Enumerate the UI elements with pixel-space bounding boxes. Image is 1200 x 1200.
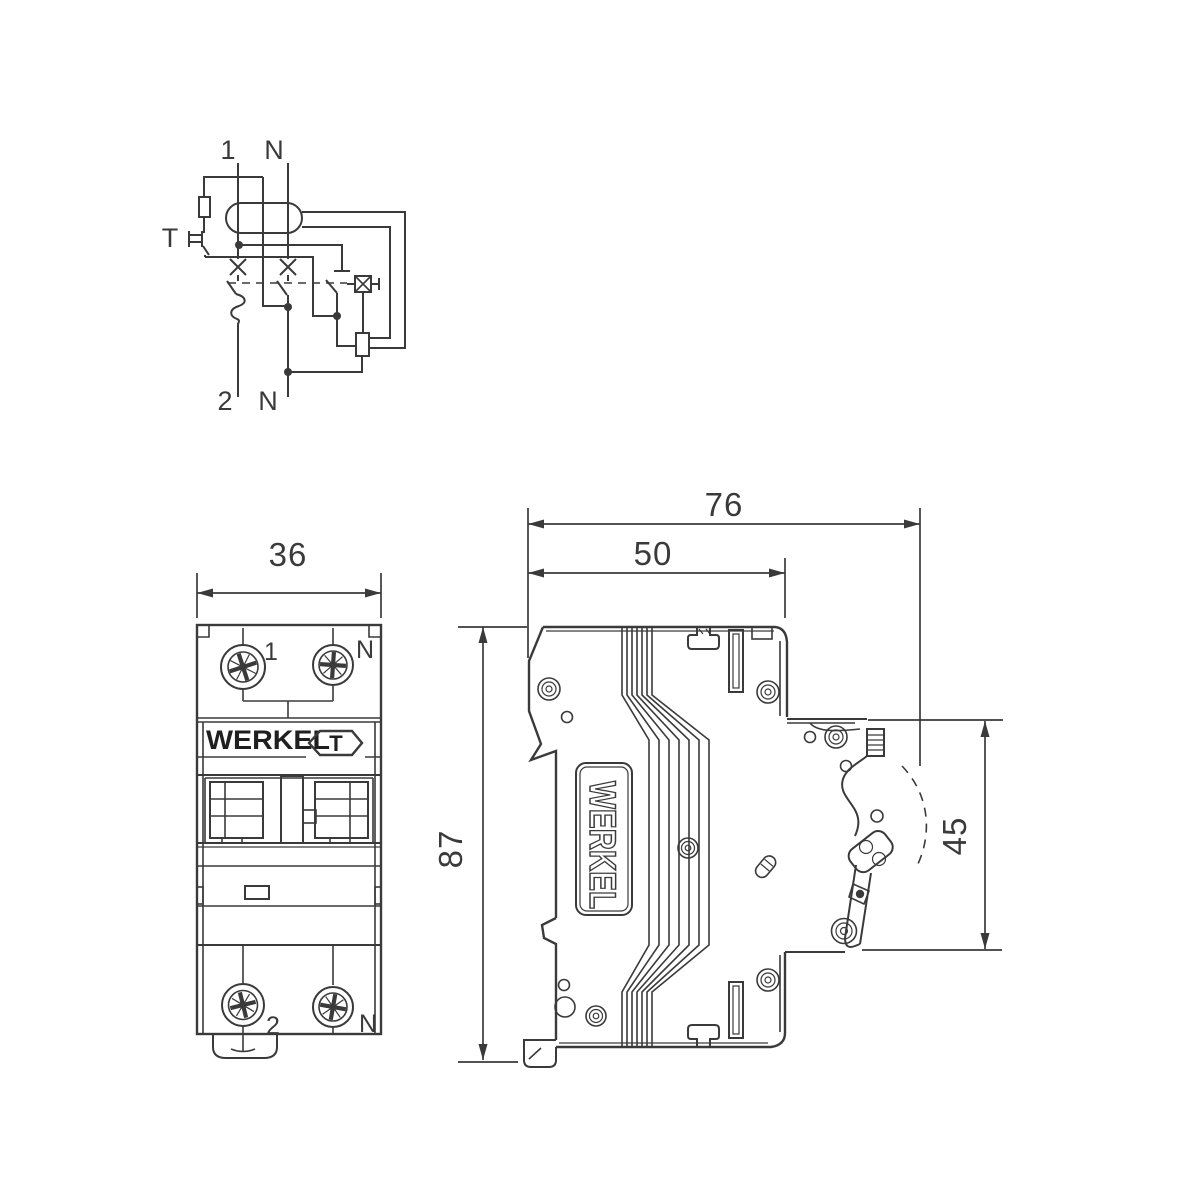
side-view: 76 50 87 45 — [432, 486, 1003, 1067]
side-toggle-lever[interactable] — [832, 766, 927, 947]
case-grooves — [622, 627, 709, 1047]
relay-coil — [356, 333, 369, 356]
indicator-capsule — [753, 853, 778, 880]
thermal-release-symbol — [231, 294, 244, 397]
dim-text-87: 87 — [432, 830, 469, 869]
drawing-page: 1 N T 2 N 36 — [0, 0, 1200, 1200]
terminal-screw-bottom-left — [222, 984, 264, 1052]
side-brand-plate: WERKEL — [576, 763, 632, 915]
wiring-schematic: 1 N T 2 N — [162, 135, 405, 416]
terminal-bracket — [787, 719, 884, 836]
test-button-label: T — [329, 731, 343, 756]
front-view: 36 1 N WERKE — [197, 536, 381, 1058]
technical-drawing: 1 N T 2 N 36 — [0, 0, 1200, 1200]
dim-text-76: 76 — [705, 486, 744, 523]
front-terminal-label-n-top: N — [356, 636, 374, 664]
din-clip-side — [524, 1040, 556, 1067]
indicator-window — [245, 886, 269, 899]
dimension-width-36: 36 — [197, 536, 381, 618]
dimension-height-87: 87 — [432, 627, 527, 1062]
terminal-screw-bottom-right — [313, 987, 353, 1034]
schematic-label-neutral-out: N — [258, 386, 278, 416]
top-mount-slot — [688, 627, 719, 649]
terminal-screw-top-left — [221, 628, 265, 701]
side-brand-label: WERKEL — [582, 781, 623, 909]
schematic-label-line-out: 2 — [217, 386, 232, 416]
dim-text-50: 50 — [634, 535, 673, 572]
contact-symbol-pole1 — [230, 255, 246, 281]
lever-travel-arc — [902, 766, 926, 866]
schematic-label-neutral-in: N — [264, 135, 284, 165]
toggle-switches[interactable] — [197, 775, 381, 847]
front-terminal-label-1: 1 — [264, 638, 278, 666]
test-resistor — [199, 197, 210, 217]
dim-text-45: 45 — [936, 817, 973, 856]
terminal-screw-top-right — [313, 628, 353, 701]
trip-coil-symbol — [347, 276, 379, 333]
dimension-depth-50: 50 — [528, 535, 785, 618]
toggle-tie-bar — [281, 776, 303, 843]
dim-text-36: 36 — [269, 536, 308, 573]
bottom-mount-slot — [688, 1025, 719, 1047]
test-button-symbol — [189, 231, 209, 257]
schematic-label-line-in: 1 — [220, 135, 235, 165]
schematic-label-test: T — [162, 223, 179, 253]
contact-symbol-neutral — [280, 255, 296, 281]
